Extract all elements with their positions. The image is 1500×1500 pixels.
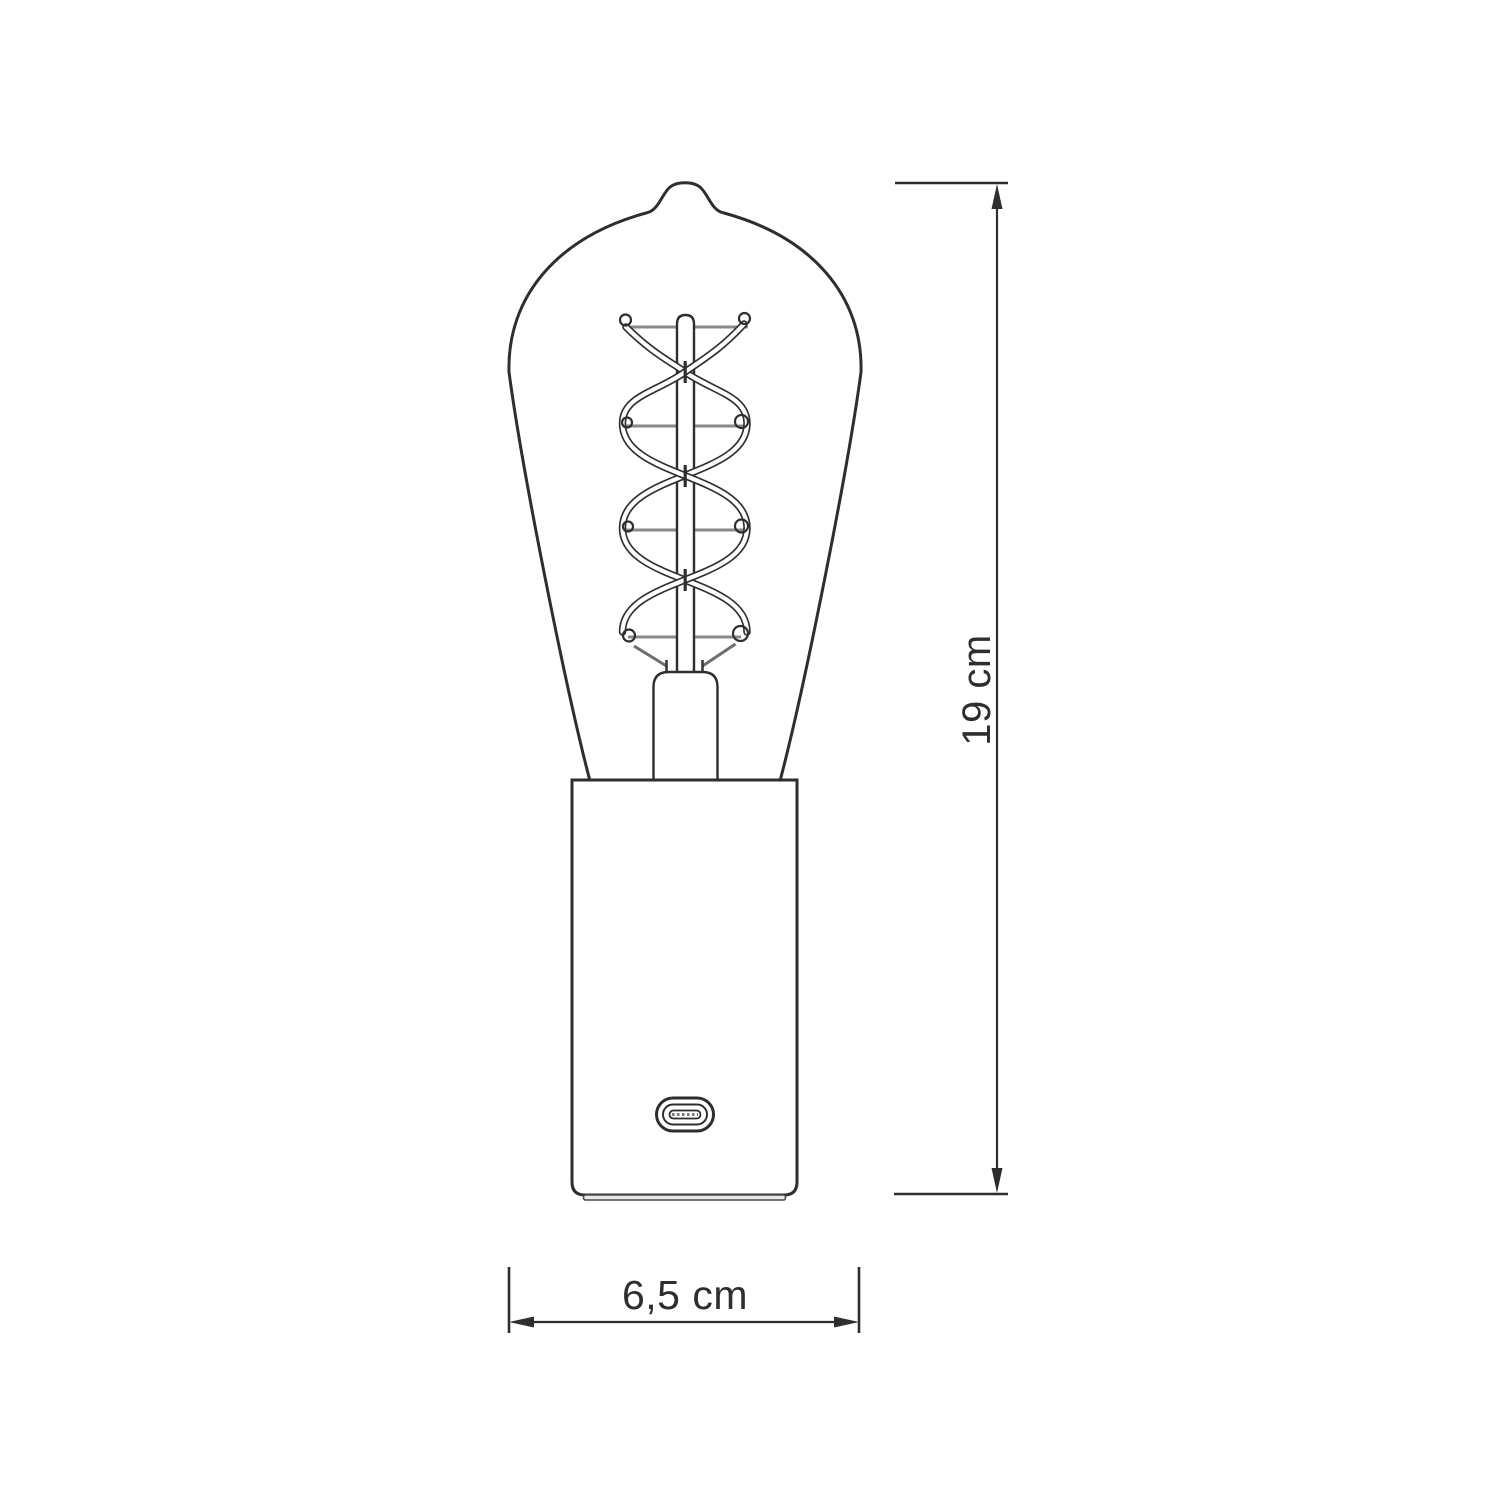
arrow-left-icon <box>509 1317 534 1328</box>
usb-c-port <box>657 1098 714 1131</box>
arrow-right-icon <box>834 1317 859 1328</box>
arrow-down-icon <box>992 1168 1003 1193</box>
width-dimension-label: 6,5 cm <box>585 1272 785 1318</box>
diagram-canvas: 19 cm 6,5 cm <box>0 0 1500 1500</box>
stem-press <box>654 672 718 782</box>
height-dimension-label: 19 cm <box>954 610 1000 770</box>
base-cylinder <box>572 780 797 1195</box>
arrow-up-icon <box>992 184 1003 209</box>
base-bottom-plate <box>584 1195 786 1200</box>
